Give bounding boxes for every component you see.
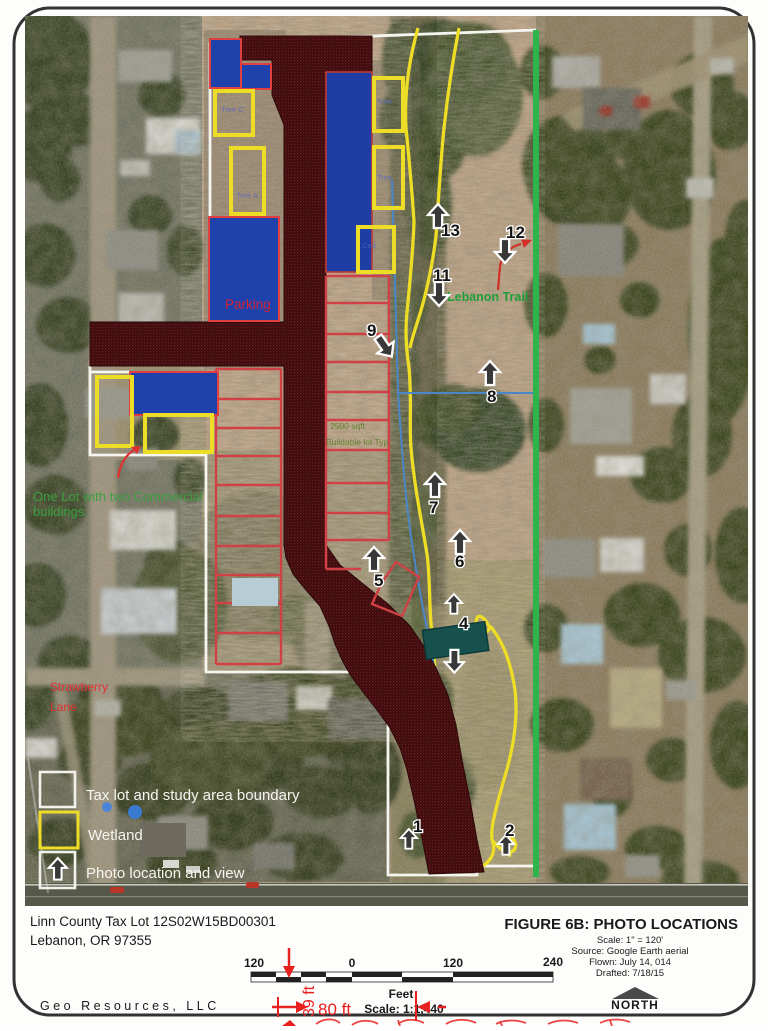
svg-text:2500 sqft: 2500 sqft	[330, 421, 366, 431]
svg-text:5: 5	[374, 571, 383, 590]
svg-text:120: 120	[244, 956, 264, 970]
svg-text:Buildable lot Typ: Buildable lot Typ	[326, 437, 388, 447]
svg-text:Scale: 1" = 120': Scale: 1" = 120'	[597, 935, 663, 946]
svg-text:4: 4	[459, 614, 469, 633]
svg-text:6: 6	[455, 552, 464, 571]
svg-text:Drafted: 7/18/15: Drafted: 7/18/15	[596, 968, 664, 979]
svg-text:2: 2	[505, 821, 514, 840]
svg-text:120: 120	[443, 956, 463, 970]
svg-text:1: 1	[413, 817, 422, 836]
svg-text:Lebanon Trail: Lebanon Trail	[447, 290, 528, 304]
svg-text:Source: Google Earth aerial: Source: Google Earth aerial	[571, 946, 688, 957]
svg-text:Wetland: Wetland	[88, 827, 143, 844]
svg-text:7: 7	[429, 498, 438, 517]
svg-text:Tax lot and study area boundar: Tax lot and study area boundary	[86, 787, 300, 804]
svg-text:9: 9	[367, 321, 376, 340]
svg-text:13: 13	[441, 221, 460, 240]
svg-text:Tree C: Tree C	[221, 105, 244, 114]
svg-text:FIGURE 6B: PHOTO LOCATIONS: FIGURE 6B: PHOTO LOCATIONS	[504, 916, 738, 933]
svg-text:Tree A: Tree A	[236, 191, 258, 200]
svg-text:Parking: Parking	[225, 297, 271, 312]
svg-text:240: 240	[543, 955, 563, 969]
svg-text:Lebanon, OR 97355: Lebanon, OR 97355	[30, 933, 152, 948]
svg-text:8: 8	[487, 387, 496, 406]
svg-text:Tree: Tree	[377, 173, 392, 182]
svg-text:Linn County Tax Lot 12S02W15BD: Linn County Tax Lot 12S02W15BD00301	[30, 914, 276, 929]
svg-text:Scale: 1:1,440: Scale: 1:1,440	[364, 1002, 444, 1016]
svg-text:Flown: July 14, 014: Flown: July 14, 014	[589, 957, 671, 968]
svg-text:Geo Resources, LLC: Geo Resources, LLC	[40, 999, 220, 1013]
svg-text:Lane: Lane	[50, 700, 77, 714]
svg-text:0: 0	[349, 956, 356, 970]
svg-text:Strawberry: Strawberry	[50, 680, 108, 694]
svg-text:Ced: Ced	[362, 241, 376, 250]
svg-text:buildings.: buildings.	[33, 504, 88, 519]
svg-text:12: 12	[506, 223, 525, 242]
svg-text:NORTH: NORTH	[611, 998, 659, 1012]
svg-text:Photo location and view: Photo location and view	[86, 865, 245, 882]
svg-text:One Lot with two Commercial: One Lot with two Commercial	[33, 489, 203, 504]
svg-text:Feet: Feet	[389, 987, 414, 1001]
svg-text:11: 11	[433, 266, 451, 285]
svg-text:Tree: Tree	[377, 97, 392, 106]
svg-text:39 ft: 39 ft	[301, 985, 318, 1017]
svg-text:80 ft: 80 ft	[318, 1000, 351, 1019]
